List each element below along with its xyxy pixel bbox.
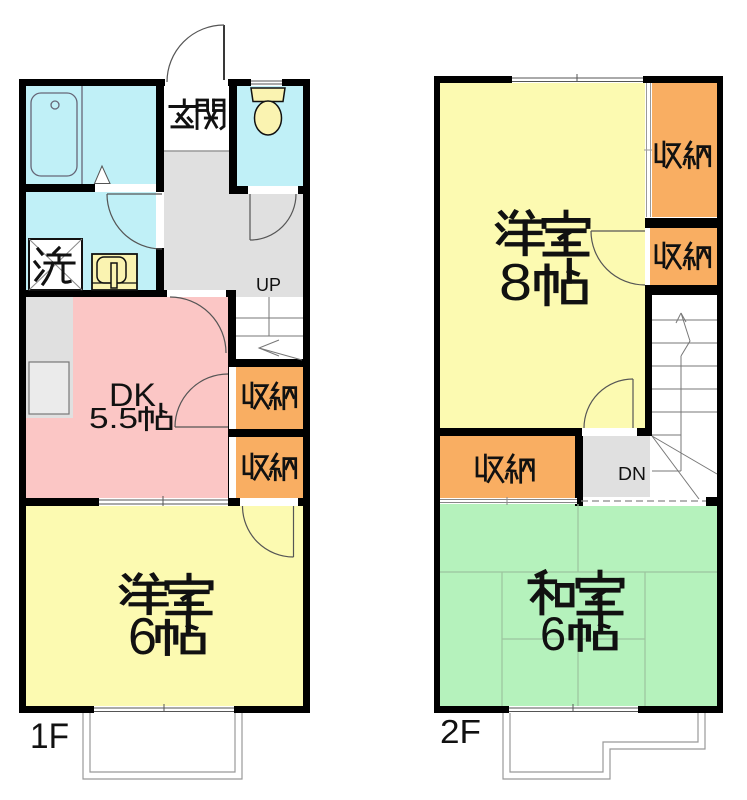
svg-text:UP: UP (256, 275, 281, 295)
svg-text:8: 8 (499, 254, 532, 312)
svg-text:5.5: 5.5 (89, 403, 138, 435)
svg-text:1F: 1F (30, 717, 69, 756)
svg-text:2F: 2F (440, 713, 481, 750)
svg-text:6: 6 (540, 607, 566, 660)
svg-text:DN: DN (618, 464, 646, 484)
svg-text:6: 6 (128, 608, 157, 666)
